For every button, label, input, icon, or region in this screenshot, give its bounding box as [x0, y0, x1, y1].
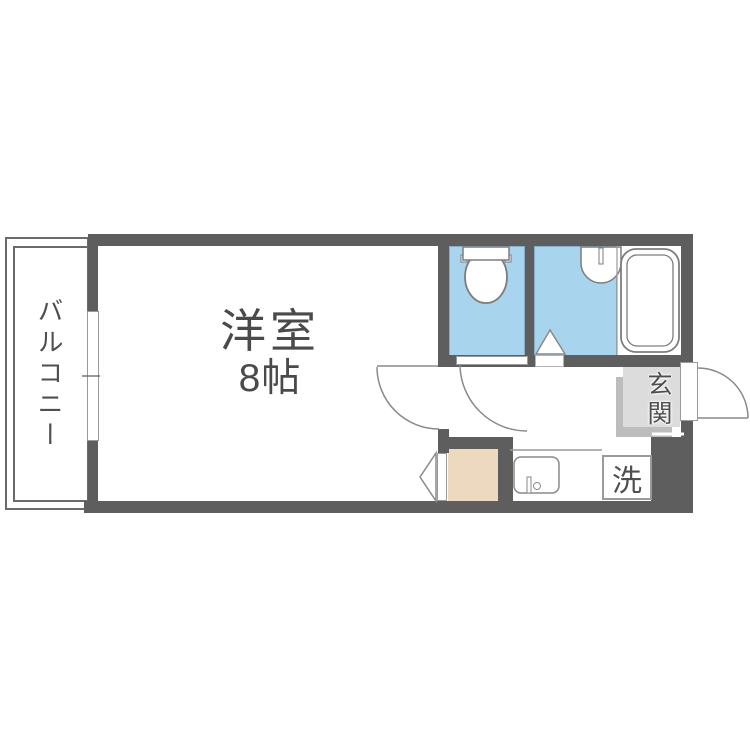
front-door-leaf — [680, 362, 698, 421]
wall-toilet-bath-divider — [525, 246, 534, 355]
bathroom-floor — [534, 246, 617, 358]
wall-entry-block — [651, 437, 693, 513]
front-door-swing-icon — [698, 368, 748, 418]
wall-right-upper — [681, 234, 693, 363]
floor-plan-canvas: 洋室 8帖 バルコニー 玄関 洗 — [0, 0, 750, 750]
kitchen-nook-floor — [448, 449, 498, 502]
wall-bottom — [84, 501, 693, 513]
bathroom-door-opening — [535, 355, 564, 367]
wall-top — [88, 234, 693, 246]
kitchen-door-triangle-icon — [420, 453, 436, 501]
wall-left-lower — [88, 441, 98, 502]
entrance-label: 玄関 — [640, 371, 676, 431]
wall-room-east-upper — [438, 246, 449, 367]
wall-kitchen-block — [498, 437, 513, 502]
toilet-door-swing-icon — [460, 364, 527, 431]
washing-machine-label: 洗 — [612, 456, 642, 500]
washing-machine-space: 洗 — [602, 455, 652, 500]
kitchen-door-leaf — [437, 453, 447, 501]
balcony-label: バルコニー — [31, 297, 68, 452]
room-door-swing-icon — [377, 366, 439, 429]
toilet-room-floor — [449, 246, 525, 356]
toilet-door-leaf — [456, 356, 528, 365]
room-size-label: 8帖 — [175, 358, 365, 401]
kitchen-sink-icon — [514, 457, 559, 493]
bathtub-area-floor — [617, 246, 681, 358]
room-name-label: 洋室 — [175, 305, 365, 358]
room-label: 洋室 8帖 — [175, 305, 365, 401]
balcony-window — [87, 311, 99, 441]
wall-left-upper — [88, 234, 98, 311]
